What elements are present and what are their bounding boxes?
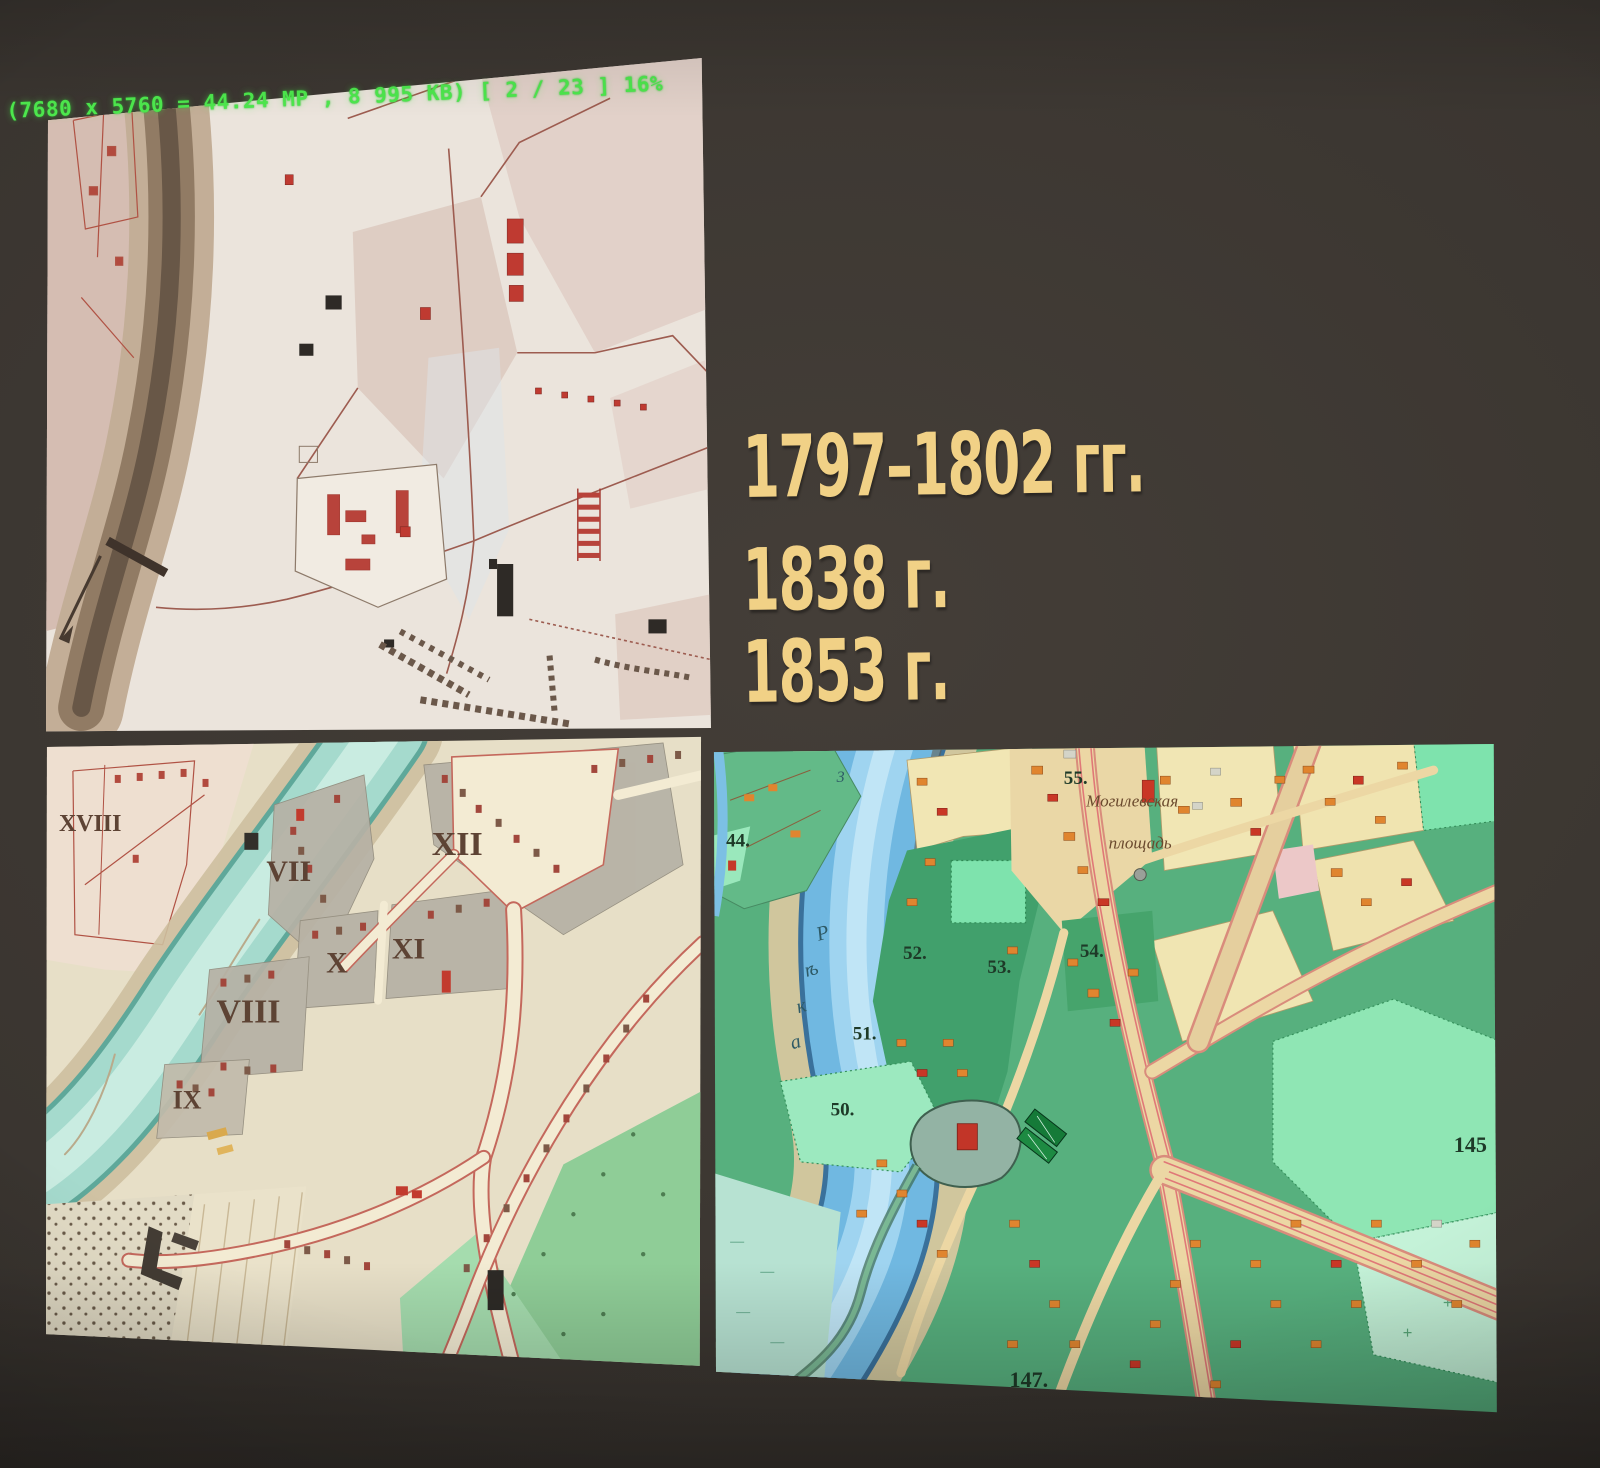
map-1838-svg: XVIII VII XII X XI VIII IX — [45, 735, 703, 1369]
numeral-viii: VIII — [216, 994, 280, 1031]
map-1797-svg — [45, 56, 711, 732]
parcel-53: 53. — [987, 957, 1011, 978]
year-label: 1853 г. — [742, 620, 950, 723]
year-label: 1797–1802 гг. — [742, 412, 1145, 518]
map-1853-svg: Могилевская площадь 44. 50. 51. 52. 53. … — [710, 740, 1500, 1415]
year-label-text: 1853 г. — [742, 620, 950, 723]
marsh — [710, 1172, 841, 1415]
map-plan-1853: Могилевская площадь 44. 50. 51. 52. 53. … — [710, 740, 1500, 1415]
numeral-xi: XI — [392, 933, 425, 966]
square-name-line1: Могилевская — [1085, 791, 1178, 810]
projected-slide-photo: XVIII VII XII X XI VIII IX — [0, 0, 1600, 1468]
parcel-51: 51. — [853, 1023, 877, 1044]
parcel-44: 44. — [726, 830, 750, 851]
map-plan-1838: XVIII VII XII X XI VIII IX — [45, 735, 703, 1369]
parcel-54: 54. — [1080, 941, 1104, 962]
numeral-x: X — [326, 947, 348, 980]
map-plan-1797-1802 — [45, 56, 711, 732]
year-label-text: 1838 г. — [742, 528, 950, 631]
numeral-xviii: XVIII — [59, 811, 121, 837]
parcel-147: 147. — [1010, 1367, 1049, 1392]
numeral-ix: IX — [173, 1085, 202, 1114]
parcel-145: 145 — [1454, 1132, 1487, 1157]
river-mark: 3 — [836, 769, 845, 786]
year-label: 1838 г. — [742, 528, 950, 631]
parcel-50: 50. — [831, 1100, 855, 1121]
numeral-xii: XII — [432, 826, 483, 863]
square-well — [1134, 869, 1146, 881]
square-name-line2: площадь — [1109, 833, 1172, 852]
numeral-vii: VII — [266, 855, 311, 888]
parcel-52: 52. — [903, 943, 927, 964]
parcel-55: 55. — [1064, 768, 1088, 789]
year-label-text: 1797–1802 гг. — [742, 412, 1145, 518]
